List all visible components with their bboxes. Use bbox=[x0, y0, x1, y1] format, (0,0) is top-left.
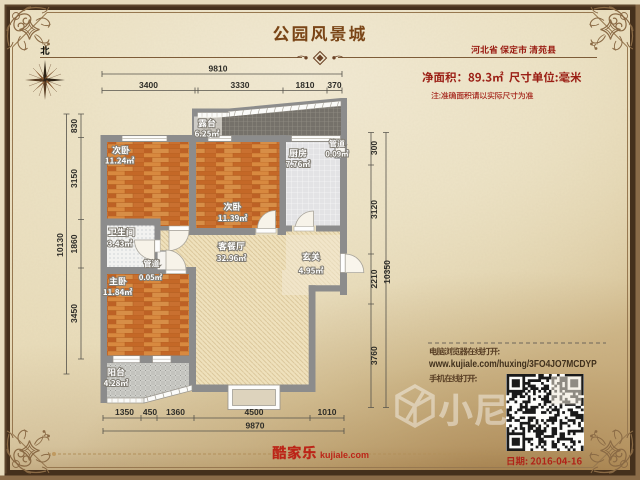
svg-text:1860: 1860 bbox=[69, 234, 79, 253]
svg-text:830: 830 bbox=[69, 119, 79, 133]
svg-text:4500: 4500 bbox=[245, 407, 264, 417]
svg-text:1350: 1350 bbox=[115, 407, 134, 417]
svg-text:1360: 1360 bbox=[166, 407, 185, 417]
svg-text:3450: 3450 bbox=[69, 304, 79, 323]
svg-text:450: 450 bbox=[143, 407, 157, 417]
svg-text:2210: 2210 bbox=[369, 269, 379, 288]
svg-text:3120: 3120 bbox=[369, 200, 379, 219]
svg-text:1010: 1010 bbox=[318, 407, 337, 417]
svg-text:3150: 3150 bbox=[69, 169, 79, 188]
svg-text:10130: 10130 bbox=[55, 233, 65, 257]
svg-text:10350: 10350 bbox=[382, 260, 392, 284]
svg-text:kujiale.com: kujiale.com bbox=[320, 450, 369, 460]
svg-text:9870: 9870 bbox=[246, 421, 265, 431]
svg-text:300: 300 bbox=[369, 141, 379, 155]
